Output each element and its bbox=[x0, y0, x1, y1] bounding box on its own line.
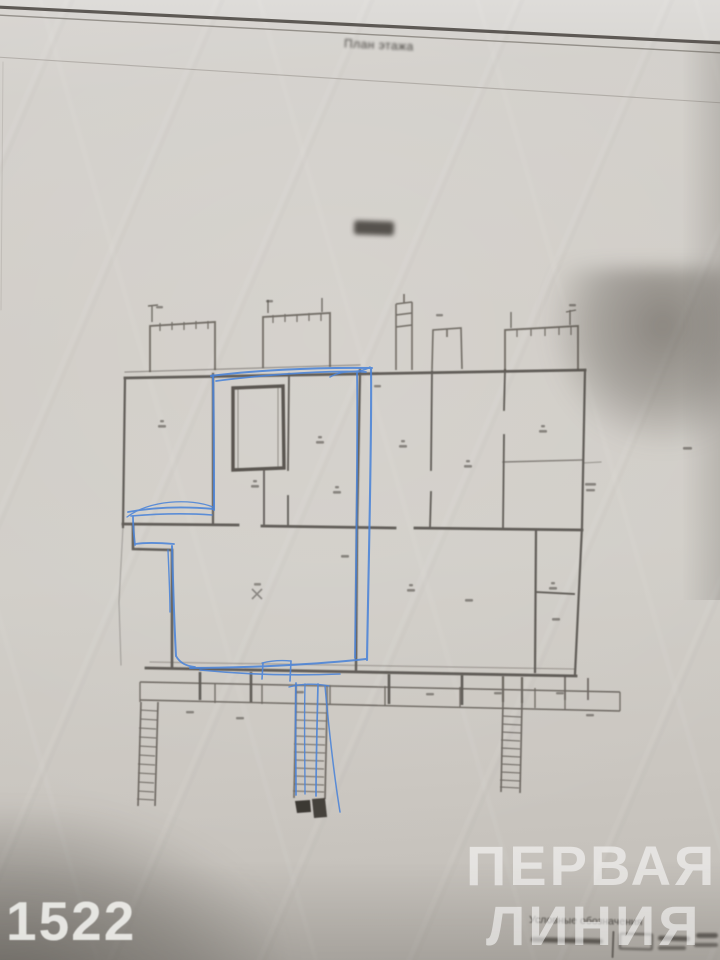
page-edge-lines bbox=[0, 7, 720, 310]
photo-shadow-right-edge bbox=[682, 40, 720, 600]
watermark-line-1: ПЕРВАЯ bbox=[466, 838, 717, 894]
porches-and-stairs bbox=[137, 672, 620, 806]
illegible-stamp-word bbox=[354, 220, 394, 235]
balconies bbox=[148, 294, 578, 372]
plan-walls bbox=[119, 365, 601, 676]
blue-pen-annotation bbox=[127, 367, 372, 812]
photographed-floor-plan-page: План этажа Условные обозначения ПЕРВАЯ Л… bbox=[0, 0, 720, 960]
watermark-line-2: ЛИНИЯ bbox=[486, 898, 701, 954]
entrance-mark bbox=[295, 798, 327, 818]
corner-number-overlay: 1522 bbox=[6, 894, 136, 949]
